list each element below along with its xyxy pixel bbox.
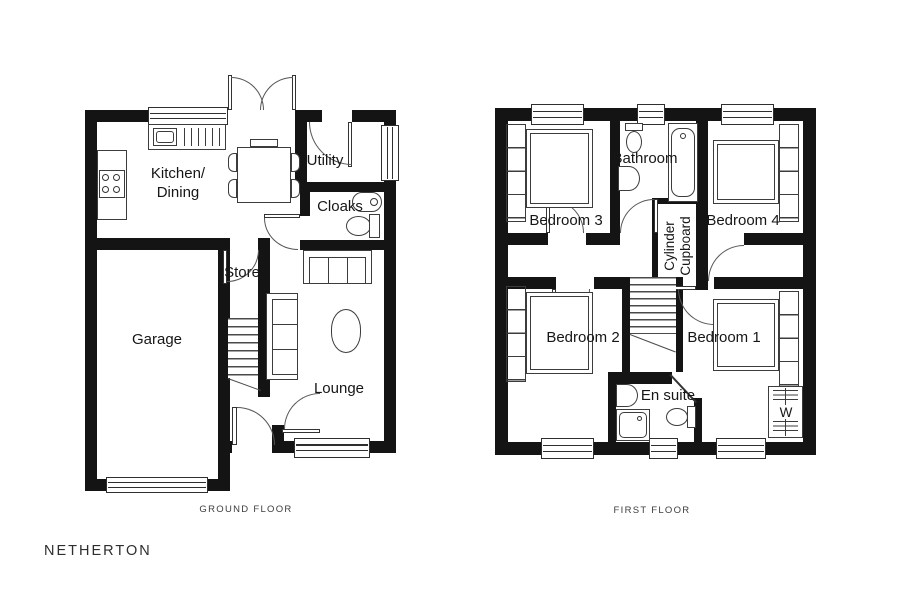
floorplan-sheet: Kitchen/ Dining Utility Cloaks Store Gar… — [0, 0, 900, 600]
bedroom4-door-arc — [708, 245, 744, 281]
dining-chair — [291, 179, 300, 198]
room-label-cloaks: Cloaks — [317, 198, 363, 215]
wall — [586, 233, 612, 245]
stairs-break-line — [228, 378, 261, 391]
dining-chair — [228, 153, 237, 172]
sofa-cushion-line — [273, 324, 297, 325]
garage-door — [106, 477, 208, 493]
wall — [495, 233, 548, 245]
wardrobe-rail-bar — [785, 388, 786, 405]
bed-headboard — [506, 286, 526, 382]
sideboard — [250, 139, 278, 147]
ensuite-toilet-bowl — [666, 408, 688, 426]
landing-window — [649, 438, 678, 459]
stairs — [228, 318, 258, 378]
room-label-store: Store — [224, 264, 260, 281]
bedroom4-window — [721, 104, 774, 125]
first-floor-caption: FIRST FLOOR — [614, 505, 691, 516]
bed-inner — [717, 144, 775, 200]
room-label-utility: Utility — [307, 152, 344, 169]
shower-drain — [637, 416, 642, 421]
sofa-cushion-line — [328, 258, 329, 283]
wardrobe-label: W — [780, 405, 793, 420]
ground-floor-caption: GROUND FLOOR — [199, 504, 292, 515]
room-label-bedroom2: Bedroom 2 — [546, 329, 619, 346]
room-label-line: Dining — [151, 183, 205, 202]
ensuite-basin — [616, 384, 638, 407]
room-label-line: Kitchen/ — [151, 164, 205, 183]
room-label-garage: Garage — [132, 331, 182, 348]
side-table — [331, 309, 361, 353]
cloaks-toilet-cistern — [369, 214, 380, 238]
bathroom-door-leaf — [654, 199, 658, 233]
kitchen-window — [148, 107, 228, 125]
sofa-seat — [309, 257, 366, 284]
sink-drainer — [184, 128, 222, 146]
wall — [744, 233, 803, 245]
hob-ring — [102, 186, 109, 193]
french-door-arc — [260, 77, 293, 110]
room-label-bedroom1: Bedroom 1 — [687, 329, 760, 346]
wall — [295, 182, 396, 192]
bedroom1-door-arc — [678, 289, 714, 325]
hob-ring — [102, 174, 109, 181]
utility-window — [381, 125, 399, 181]
room-label-bedroom4: Bedroom 4 — [706, 212, 779, 229]
hob-ring — [113, 174, 120, 181]
wardrobe-rail-bar — [785, 419, 786, 436]
room-label-bedroom3: Bedroom 3 — [529, 212, 602, 229]
bedroom2-window — [541, 438, 594, 459]
wall — [622, 277, 630, 372]
lounge-door-leaf — [282, 429, 320, 433]
bathtub-drain — [680, 133, 686, 139]
hob-ring — [113, 186, 120, 193]
lounge-door-arc — [284, 393, 320, 429]
wall — [85, 110, 97, 491]
bed-headboard — [506, 124, 526, 222]
room-label-bathroom: Bathroom — [612, 150, 677, 167]
bedroom3-window — [531, 104, 584, 125]
ensuite-toilet-cistern — [687, 406, 696, 428]
stairs — [630, 277, 676, 334]
bedroom1-window — [716, 438, 766, 459]
plan-title: NETHERTON — [44, 543, 152, 559]
bed-inner — [530, 133, 589, 204]
bathroom-window — [637, 104, 665, 125]
bed-headboard — [779, 291, 799, 389]
cloaks-tap — [370, 198, 378, 206]
room-label-kitchen-dining: Kitchen/ Dining — [151, 164, 205, 202]
room-label-en-suite: En suite — [641, 387, 695, 404]
bathroom-door-arc — [620, 199, 654, 233]
dining-chair — [291, 153, 300, 172]
french-door-arc — [231, 77, 264, 110]
wall — [803, 108, 816, 455]
lounge-window — [294, 438, 370, 458]
wall — [608, 384, 616, 442]
stairs-break-line — [630, 334, 676, 353]
room-label-line: Cupboard — [678, 216, 694, 275]
room-label-cylinder-cupboard: Cylinder Cupboard — [662, 216, 694, 275]
room-label-lounge: Lounge — [314, 380, 364, 397]
dining-table — [237, 147, 291, 203]
wall — [300, 240, 396, 250]
room-label-line: Cylinder — [662, 216, 678, 275]
front-door-arc — [237, 407, 275, 445]
wall — [85, 238, 222, 250]
cloaks-toilet-bowl — [346, 216, 371, 236]
shower-tray-inner — [619, 412, 647, 438]
bed-headboard — [779, 124, 799, 222]
bathroom-toilet-cistern — [625, 123, 643, 131]
sink-bowl-inner — [156, 131, 174, 143]
sofa-seat — [272, 299, 298, 375]
wall — [295, 110, 322, 122]
wall — [300, 192, 310, 216]
bathroom-basin — [618, 166, 640, 191]
sofa-cushion-line — [347, 258, 348, 283]
sofa-cushion-line — [273, 349, 297, 350]
dining-chair — [228, 179, 237, 198]
wall — [608, 372, 672, 384]
